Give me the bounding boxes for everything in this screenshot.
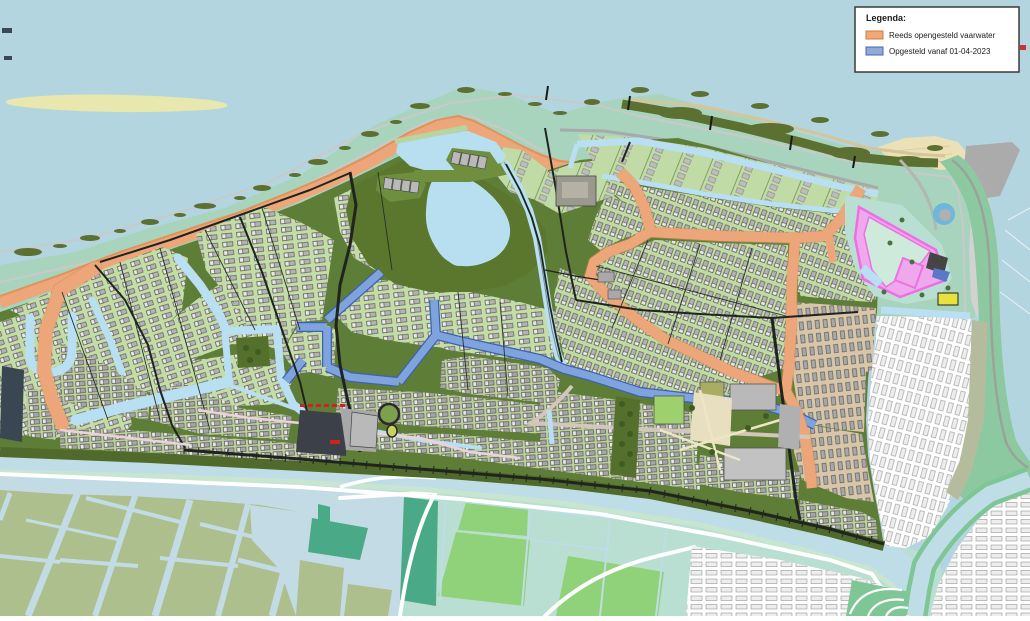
svg-text:Reeds opengesteld vaarwater: Reeds opengesteld vaarwater [889, 31, 996, 40]
svg-text:Legenda:: Legenda: [866, 13, 906, 23]
svg-text:Opgesteld vanaf 01-04-2023: Opgesteld vanaf 01-04-2023 [889, 47, 991, 56]
